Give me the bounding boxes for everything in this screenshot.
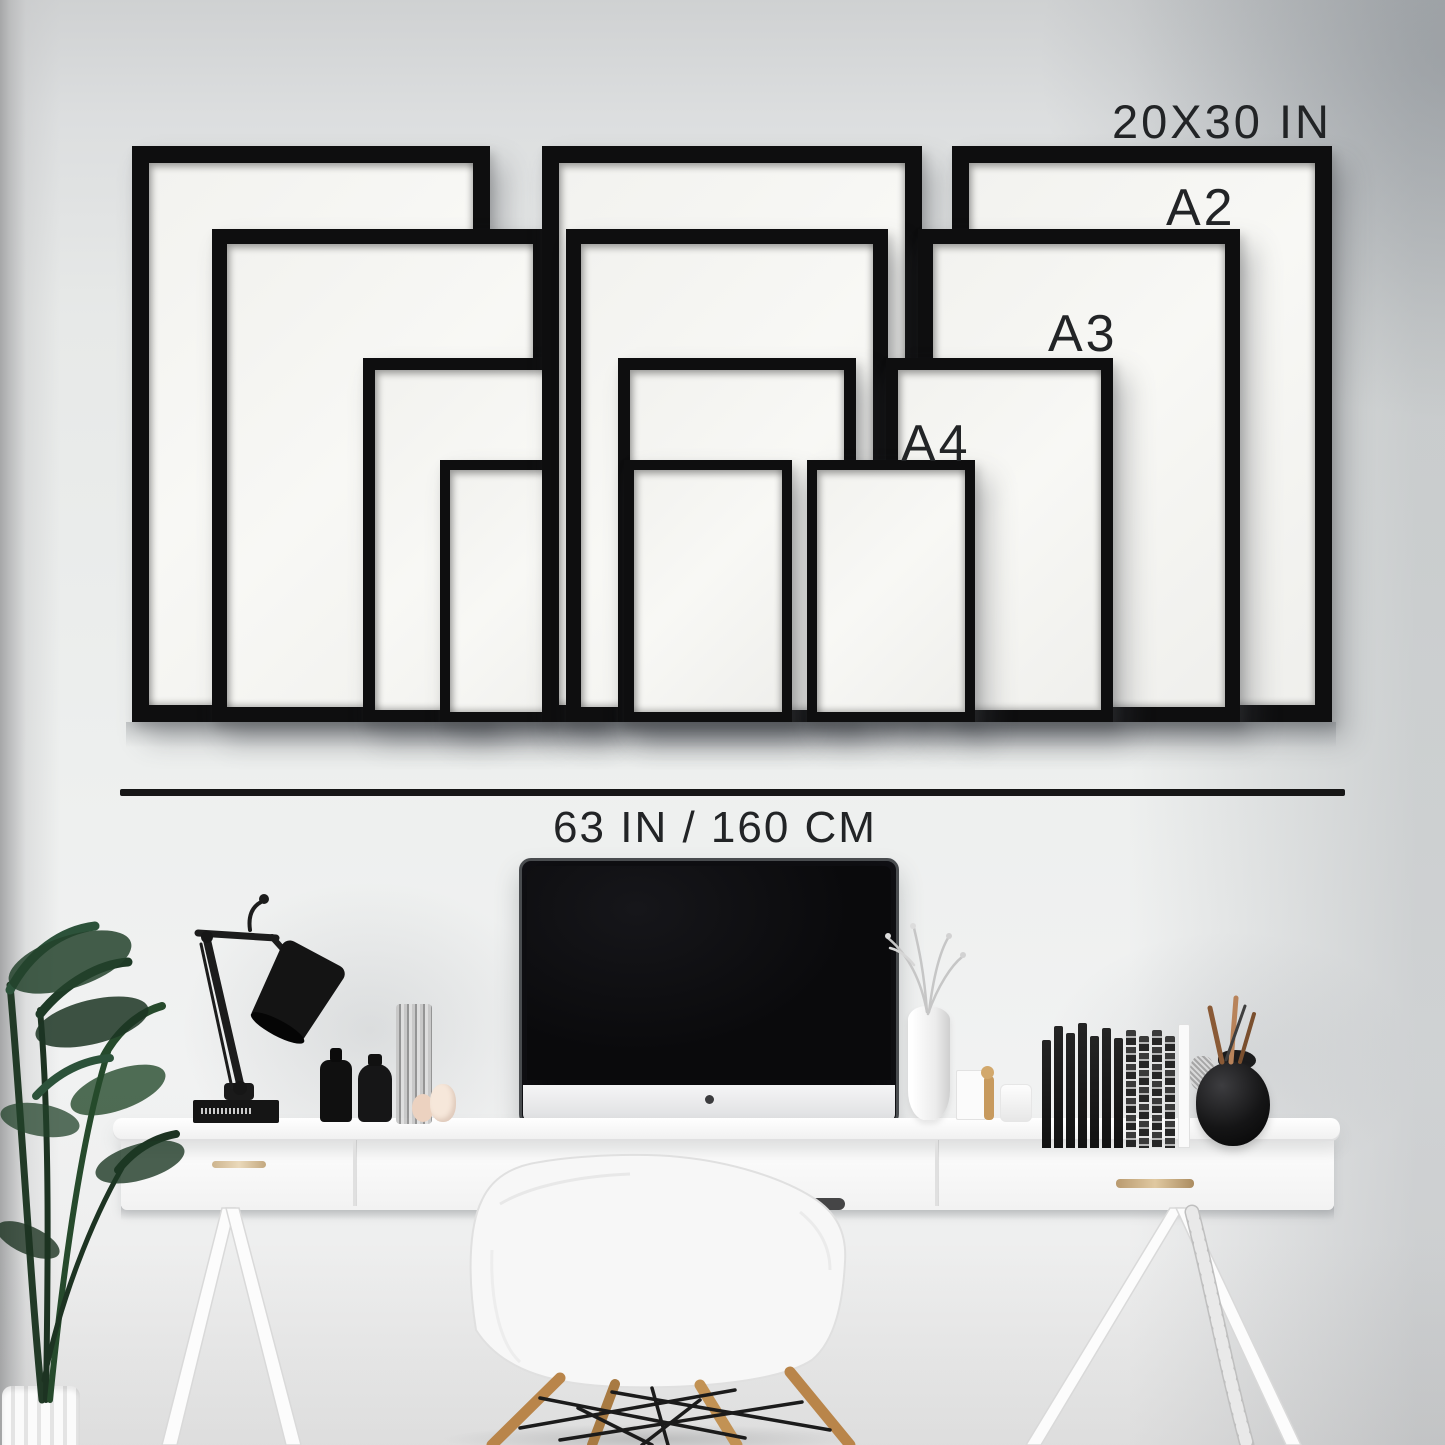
label-a3: A3	[1048, 304, 1118, 364]
black-round-bottle	[358, 1064, 392, 1122]
white-jar	[1000, 1084, 1032, 1122]
black-book	[193, 1100, 279, 1123]
book-spine-striped	[1139, 1036, 1149, 1148]
label-a4: A4	[901, 414, 971, 474]
desk-front	[121, 1138, 1334, 1210]
bottle-cap	[330, 1048, 342, 1062]
frames-shadow	[126, 722, 1336, 752]
black-bottle	[320, 1060, 352, 1122]
label-20x30: 20X30 IN	[1040, 94, 1332, 149]
book-spine	[1078, 1023, 1087, 1148]
picture-frame-right-a4	[807, 460, 975, 722]
book-spine-text	[201, 1108, 253, 1114]
desk-under-slot	[787, 1198, 845, 1210]
book-spine	[1102, 1028, 1111, 1148]
drawer-handle-left	[212, 1161, 266, 1168]
book-spine-striped	[1126, 1030, 1136, 1148]
bottle-neck	[368, 1054, 382, 1066]
wooden-mannequin	[984, 1076, 994, 1120]
book-spine-striped	[1152, 1030, 1162, 1148]
book-spine-striped	[1165, 1036, 1175, 1148]
drawer-seam	[353, 1140, 356, 1206]
imac-computer	[519, 858, 899, 1126]
monitor-logo-dot	[705, 1095, 714, 1104]
monitor-chin	[523, 1085, 895, 1122]
book-spine	[1114, 1038, 1123, 1148]
monitor-screen	[527, 866, 891, 1080]
drawer-seam	[935, 1140, 938, 1206]
brush-pot	[1196, 1062, 1270, 1146]
white-ribbed-planter	[2, 1386, 80, 1445]
scene: 20X30 IN A2 A3 A4 63 IN / 160 CM	[0, 0, 1445, 1445]
book-spines-row	[1042, 1020, 1194, 1148]
measure-line	[120, 789, 1345, 796]
drawer-handle-right	[1116, 1179, 1194, 1188]
book-spine	[1042, 1040, 1051, 1148]
white-sculptural-vase	[908, 1006, 950, 1120]
picture-frame-center-a4	[624, 460, 792, 722]
label-a2: A2	[1166, 178, 1236, 238]
book-spine	[1090, 1036, 1099, 1148]
book-spine	[1066, 1033, 1075, 1148]
book-spine	[1054, 1026, 1063, 1148]
bookend	[1178, 1024, 1190, 1148]
label-wall-width: 63 IN / 160 CM	[515, 803, 915, 853]
stone-pebble	[430, 1084, 456, 1122]
white-card	[956, 1070, 986, 1120]
wooden-mannequin-head	[981, 1066, 994, 1079]
